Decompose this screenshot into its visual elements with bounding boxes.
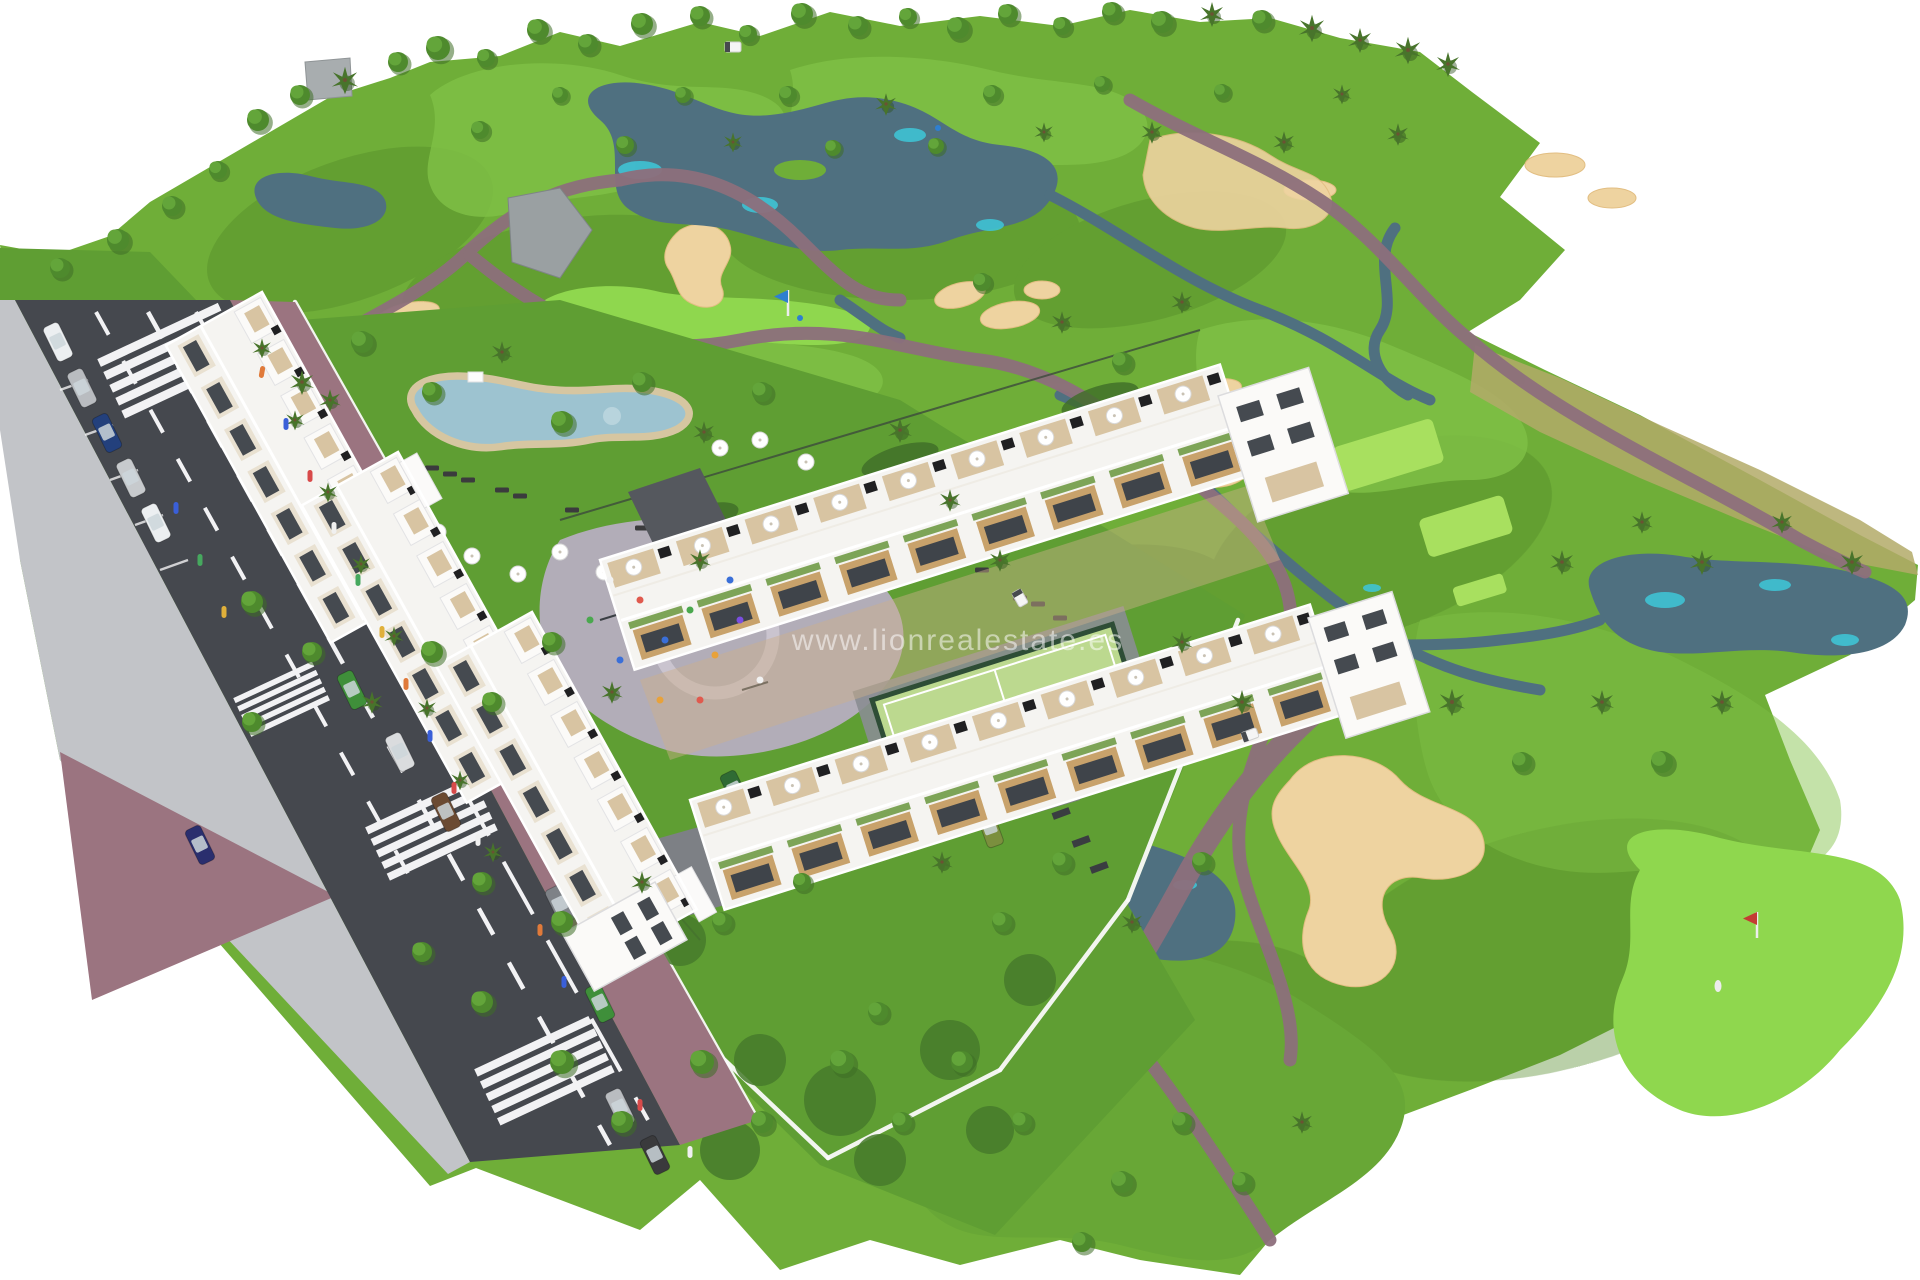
watermark-text: www.lionrealestate.es (791, 624, 1124, 657)
main-putting-green (1613, 829, 1903, 1116)
aerial-render-golf-resort: www.lionrealestate.es (0, 0, 1920, 1280)
scene-svg: www.lionrealestate.es (0, 0, 1920, 1280)
